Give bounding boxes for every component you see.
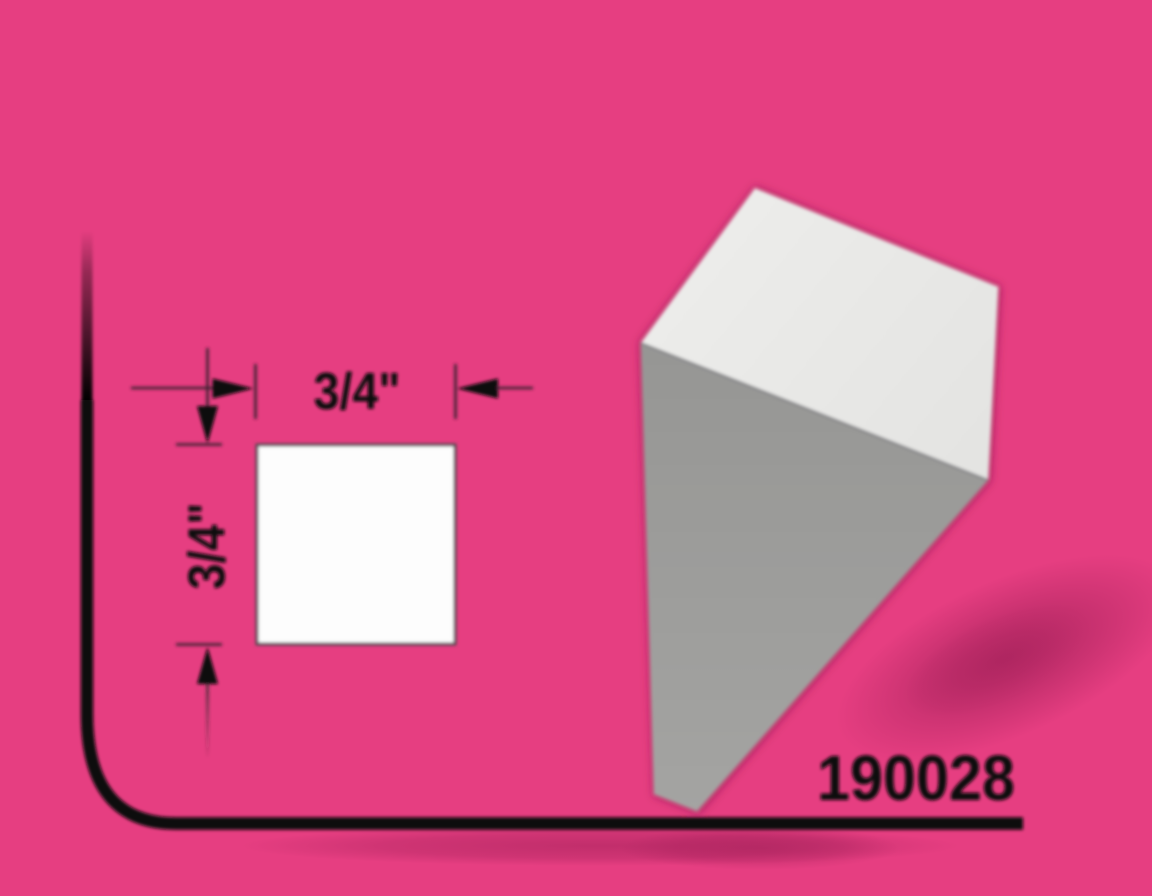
- svg-text:3/4": 3/4": [179, 503, 237, 590]
- svg-text:190028: 190028: [817, 742, 1015, 814]
- svg-text:3/4": 3/4": [314, 363, 401, 421]
